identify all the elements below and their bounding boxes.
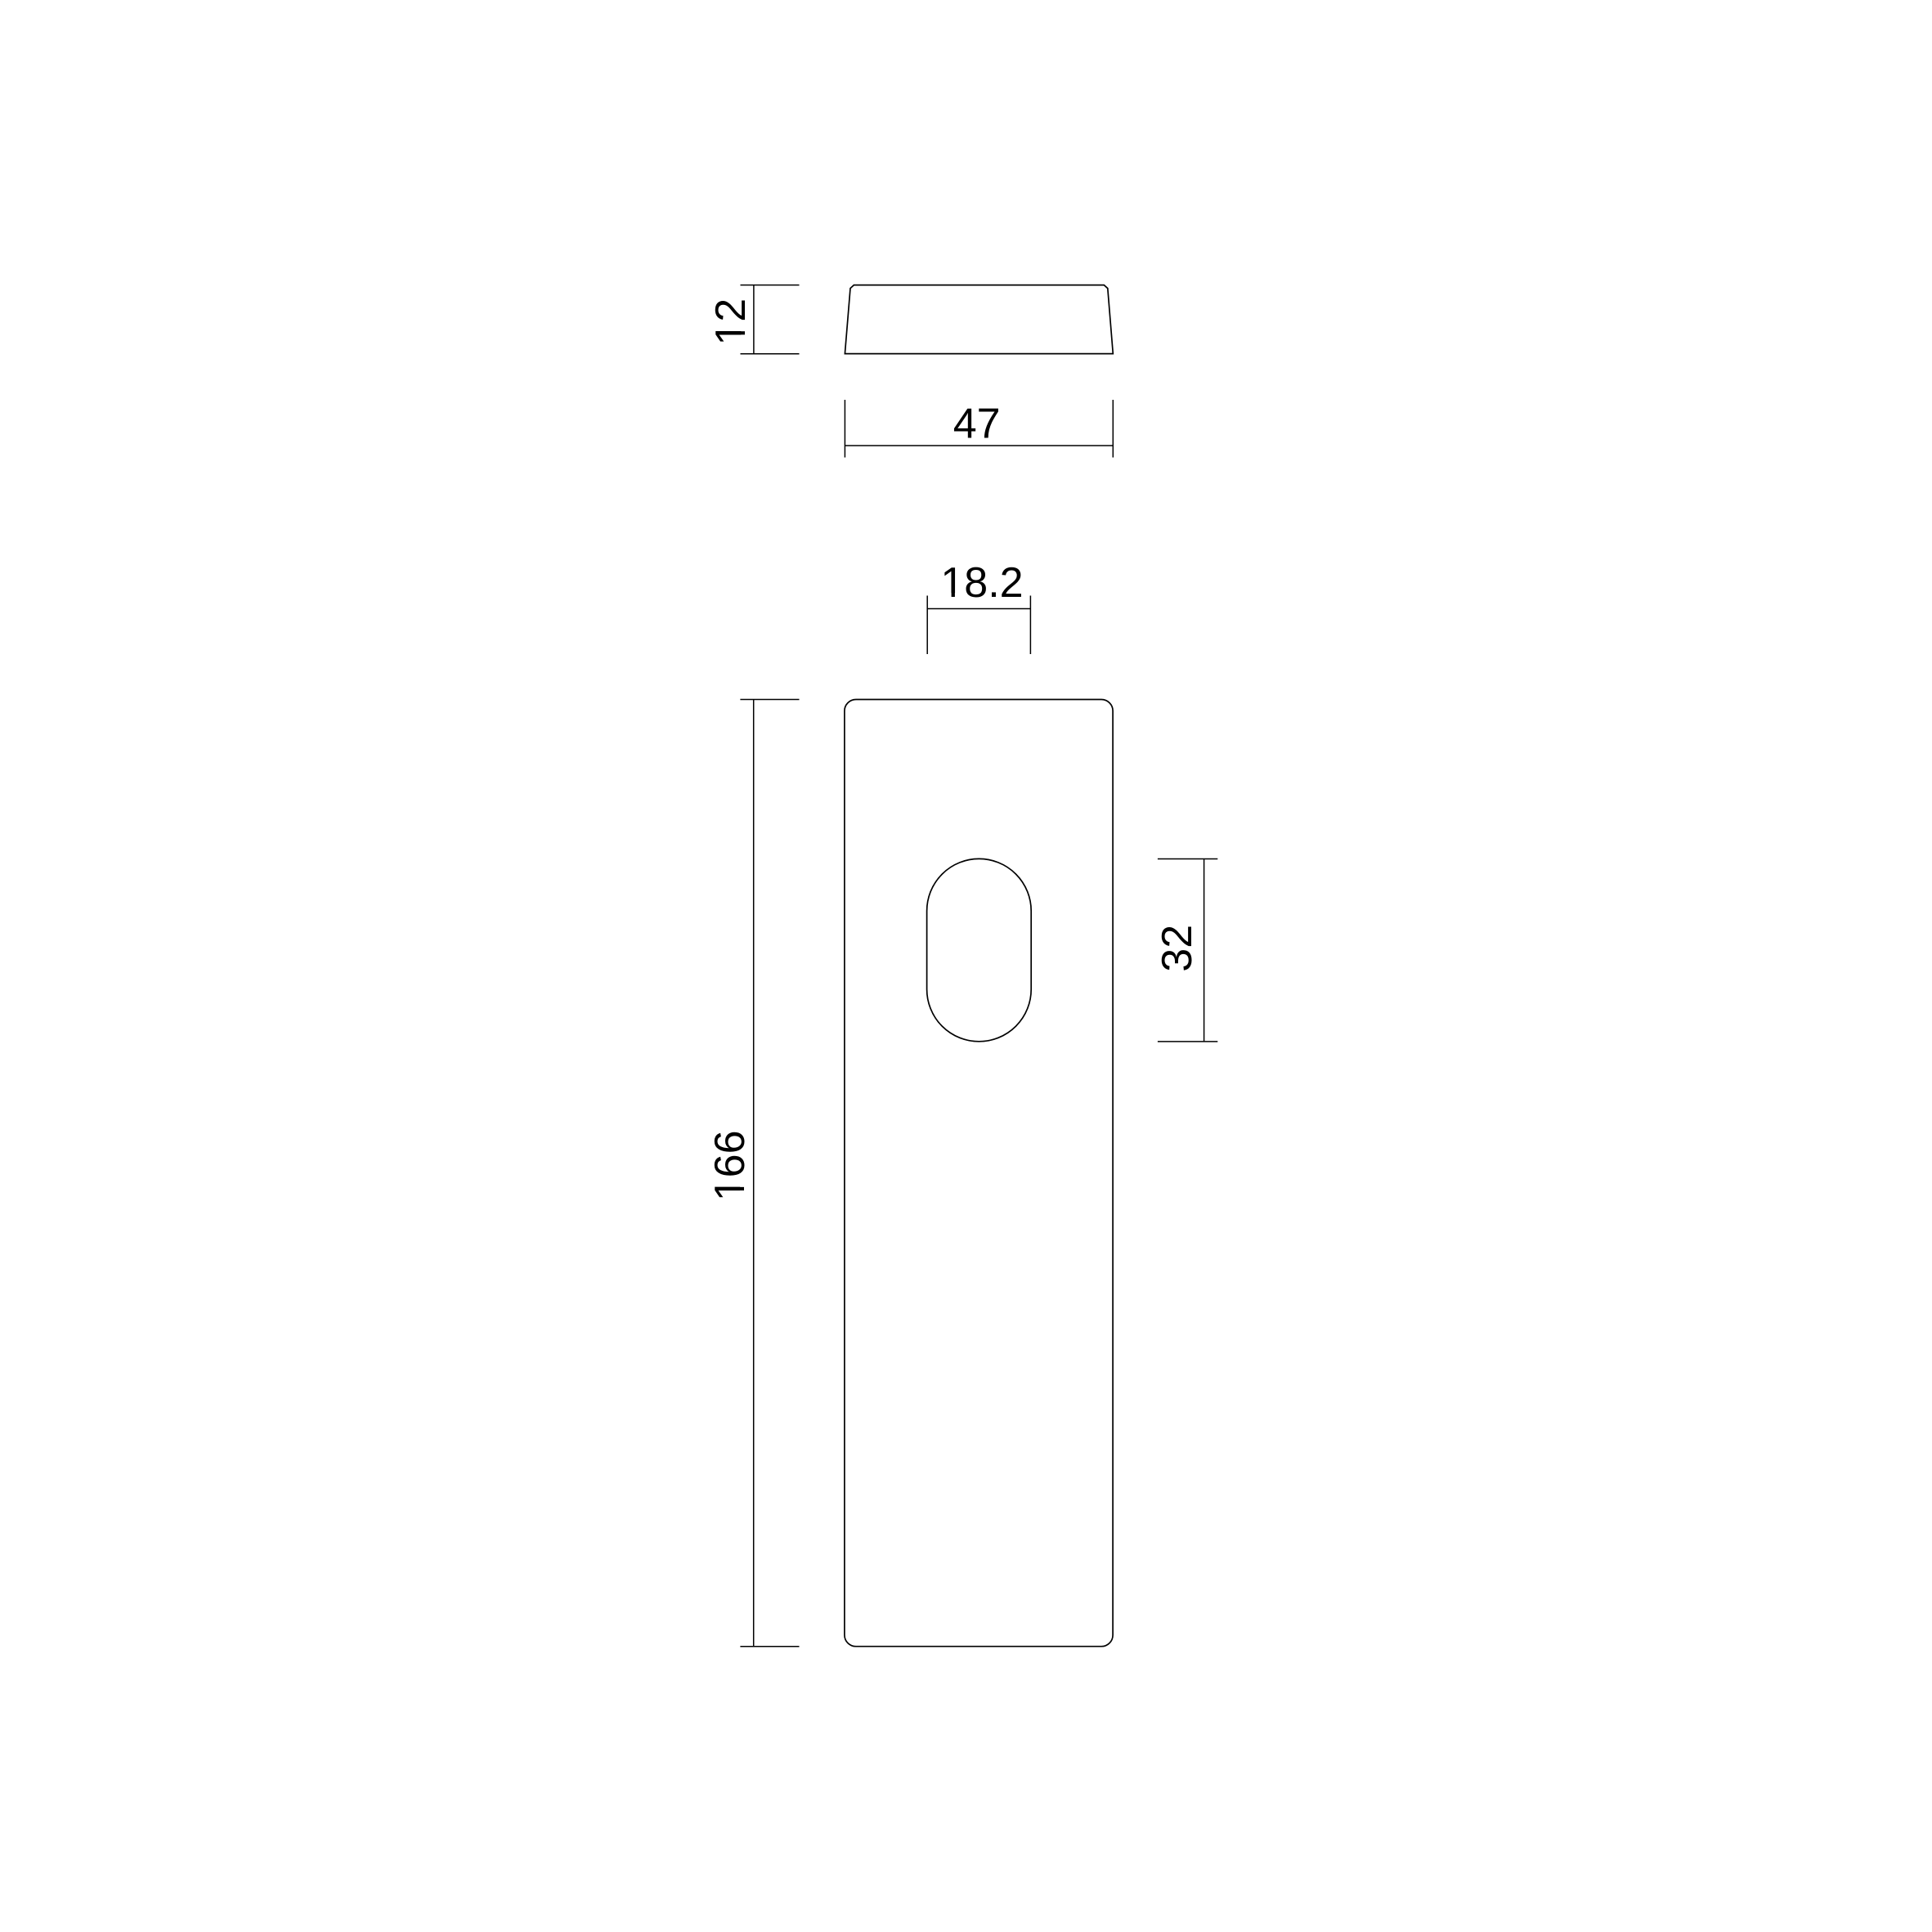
svg-text:12: 12 xyxy=(707,298,755,346)
svg-text:18.2: 18.2 xyxy=(940,559,1023,607)
svg-text:166: 166 xyxy=(706,1131,754,1202)
svg-text:47: 47 xyxy=(953,400,1001,447)
svg-text:32: 32 xyxy=(1154,925,1201,972)
